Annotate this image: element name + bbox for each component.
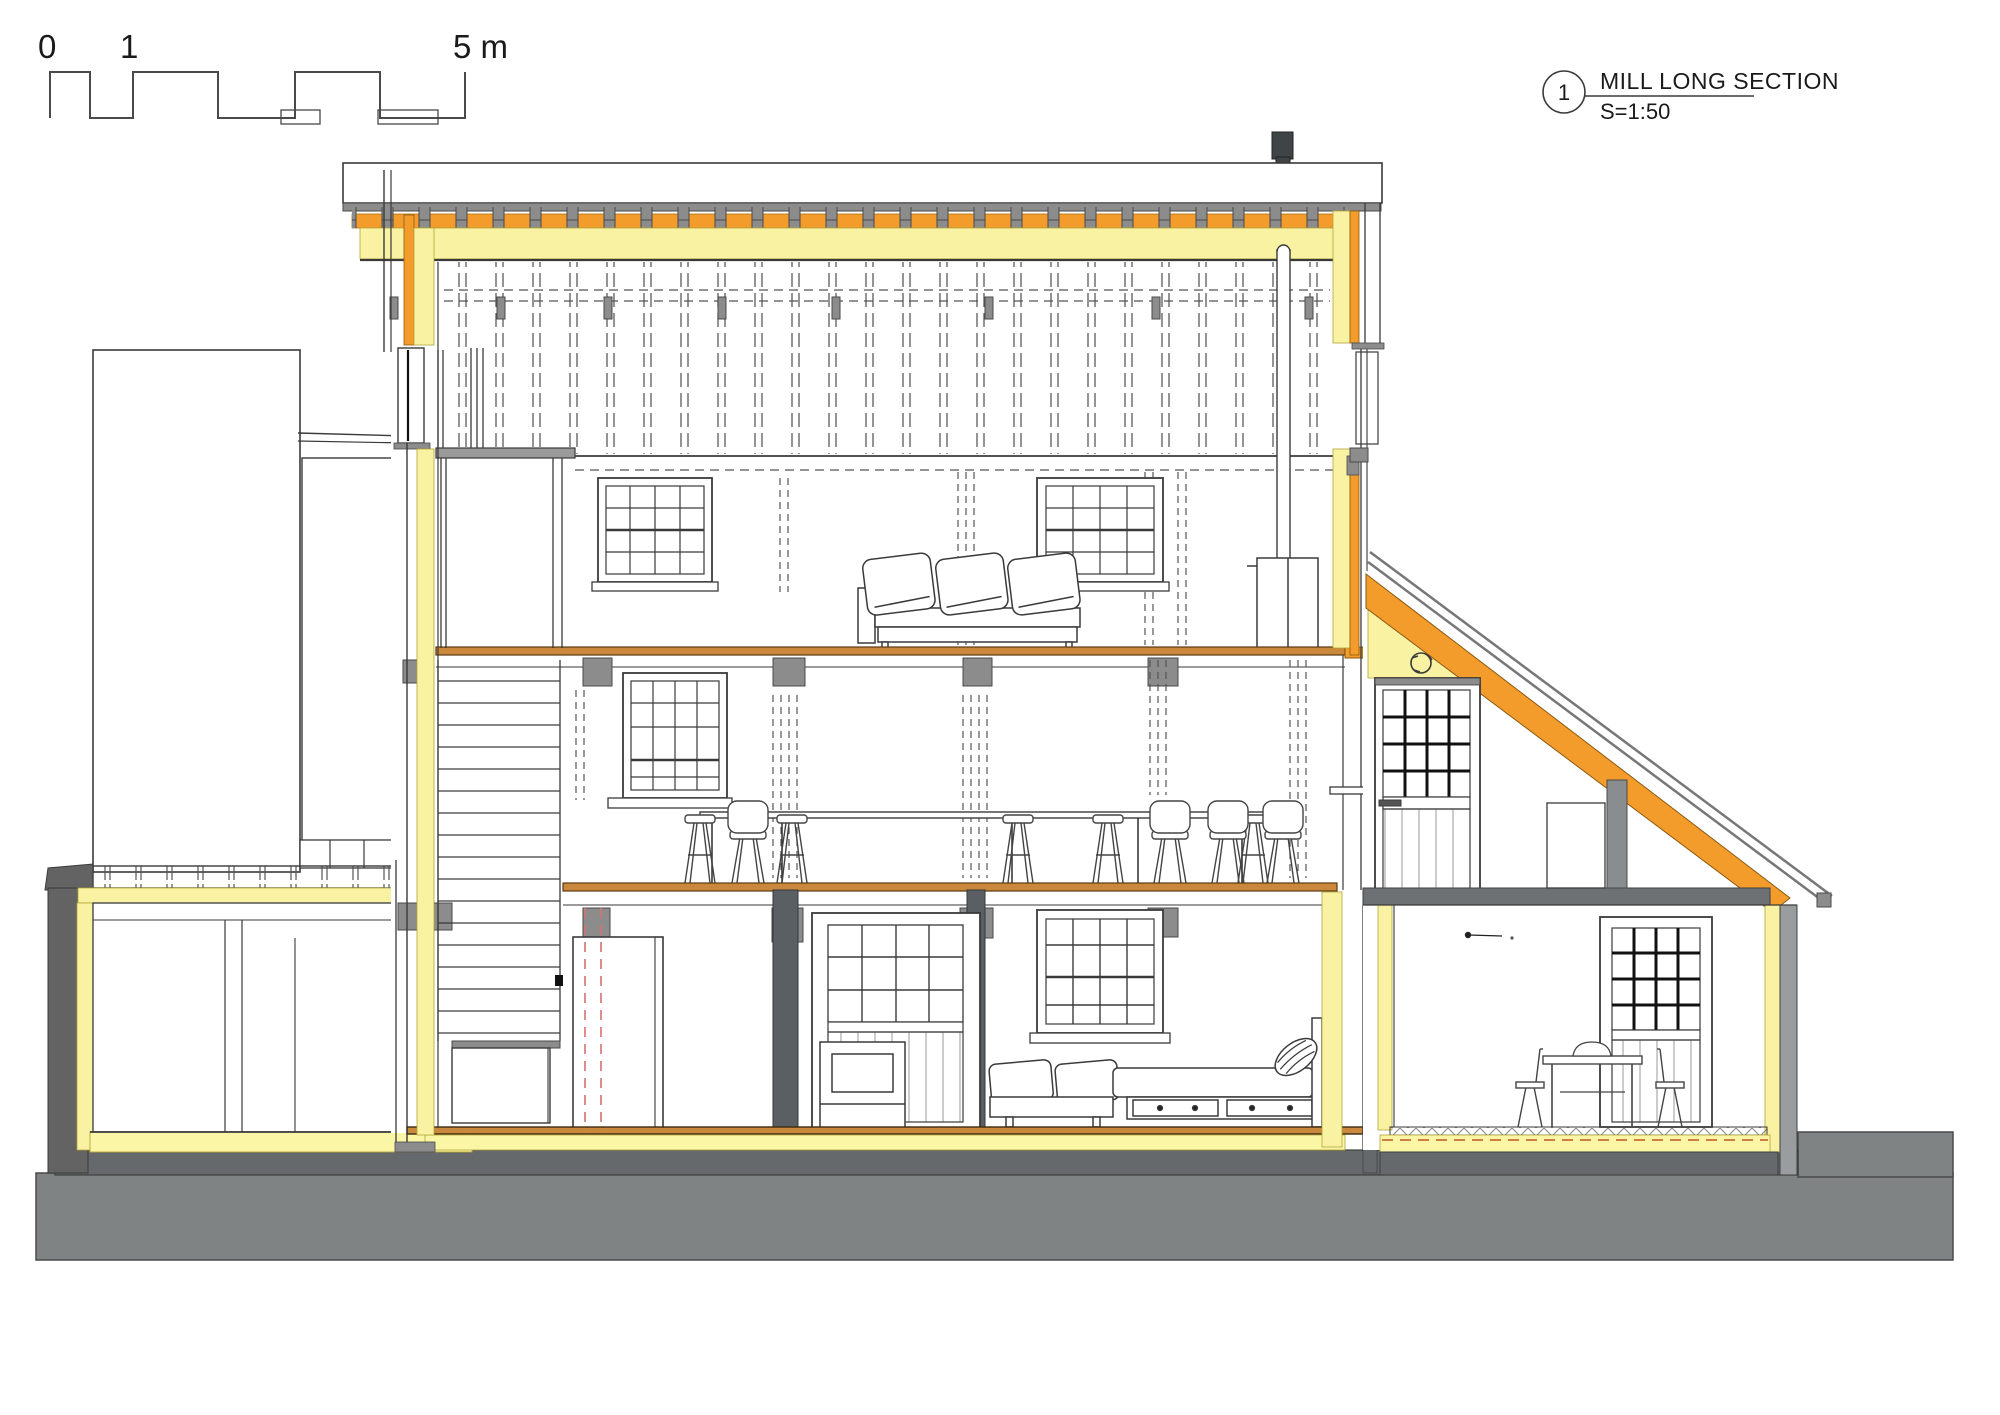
- scale-label-1: 1: [120, 28, 138, 65]
- timber-post-left: [773, 890, 798, 1127]
- roof-fascia-band: [343, 163, 1382, 203]
- attic-boarding-dashed: [438, 262, 1332, 454]
- lean-to-ceiling-band: [1363, 888, 1770, 905]
- flue-cupboard: [1247, 558, 1318, 650]
- annex-roof-insulation: [78, 888, 408, 903]
- scale-bar: 0 1 5 m: [38, 28, 508, 118]
- first-floor-window: [608, 673, 732, 808]
- fridge-cabinet: [573, 908, 663, 1150]
- lean-to-outer-wall: [1780, 905, 1797, 1175]
- flue-pipe: [1277, 250, 1290, 562]
- lean-to-gable-door: [1370, 678, 1484, 897]
- link-glazing: [300, 840, 398, 868]
- lean-to-rooflight-box: [1547, 803, 1605, 888]
- chimney-flue-terminal: [1272, 132, 1293, 159]
- lean-to-room-bg: [1363, 905, 1797, 1150]
- second-floor-window-left: [592, 478, 718, 591]
- floor-line-second: [436, 647, 1345, 655]
- view-number: 1: [1558, 80, 1570, 105]
- view-scale: S=1:50: [1600, 99, 1670, 124]
- scale-label-5m: 5 m: [453, 28, 508, 65]
- stair-window-left-wall: [394, 348, 430, 449]
- annex-roof-deck: [93, 866, 408, 888]
- ground-floor-slab: [407, 1127, 1363, 1150]
- door-handle-cut: [1330, 787, 1368, 794]
- mill-long-section-drawing: 0 1 5 m 1 MILL LONG SECTION S=1:50: [0, 0, 2000, 1415]
- scale-label-0: 0: [38, 28, 56, 65]
- stair-treads: [438, 660, 560, 1041]
- stair-top-landing: [436, 448, 575, 458]
- title-block: 1 MILL LONG SECTION S=1:50: [1543, 68, 1839, 124]
- annex-parapet: [45, 864, 93, 890]
- ground-floor-window: [1030, 910, 1170, 1043]
- newel-post-mark: [555, 975, 563, 986]
- view-title: MILL LONG SECTION: [1600, 68, 1839, 94]
- lean-to-roof-post: [1607, 780, 1627, 888]
- lean-to-floor-hatch: [1390, 1127, 1767, 1135]
- lean-to-stable-door: [1600, 917, 1712, 1127]
- floor-line-first: [563, 883, 1337, 891]
- roof-assembly: [281, 110, 1382, 260]
- under-stair-cupboard: [452, 1048, 550, 1123]
- roof-soft-insulation: [360, 228, 1348, 259]
- left-neighbour-building: [93, 350, 406, 872]
- rafter-tails: [352, 207, 1350, 228]
- door-handle: [1379, 800, 1401, 806]
- floor-line-ground: [407, 1127, 1363, 1134]
- attic-void: [390, 262, 1332, 454]
- sofa: [858, 552, 1081, 648]
- floor-insulation-ground: [425, 1135, 1345, 1150]
- annex-room: [93, 903, 396, 1132]
- gutter-end: [1817, 893, 1831, 907]
- stove: [820, 1042, 905, 1130]
- lean-to: [1350, 448, 1832, 1175]
- drawing-sheet: 0 1 5 m 1 MILL LONG SECTION S=1:50: [0, 0, 2000, 1415]
